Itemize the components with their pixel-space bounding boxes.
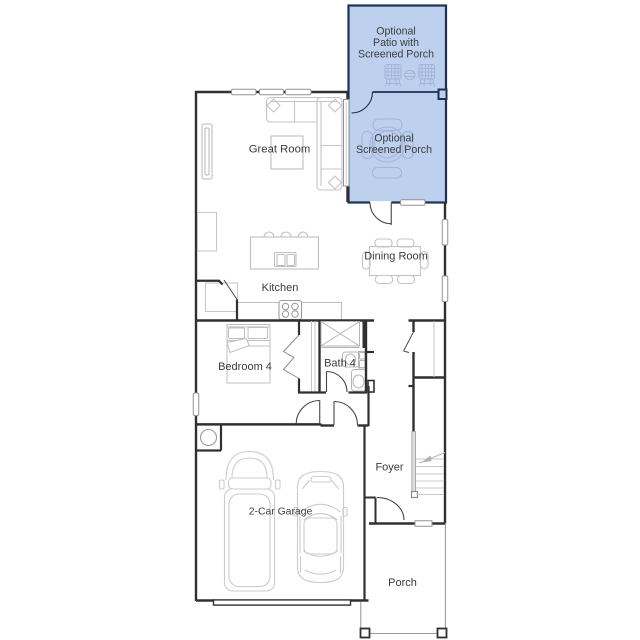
svg-text:Foyer: Foyer xyxy=(375,462,403,474)
svg-text:Great Room: Great Room xyxy=(249,144,311,156)
svg-text:Patio with: Patio with xyxy=(373,37,419,49)
svg-text:Porch: Porch xyxy=(388,577,417,589)
svg-text:Bath 4: Bath 4 xyxy=(324,358,356,370)
svg-text:Optional: Optional xyxy=(376,26,415,38)
svg-text:Kitchen: Kitchen xyxy=(262,282,299,294)
svg-text:2-Car Garage: 2-Car Garage xyxy=(249,507,313,518)
svg-text:Screened Porch: Screened Porch xyxy=(356,144,432,156)
svg-text:Screened Porch: Screened Porch xyxy=(358,49,434,61)
svg-text:Optional: Optional xyxy=(374,133,413,145)
svg-text:Dining Room: Dining Room xyxy=(364,251,428,263)
svg-text:Bedroom 4: Bedroom 4 xyxy=(218,361,272,373)
